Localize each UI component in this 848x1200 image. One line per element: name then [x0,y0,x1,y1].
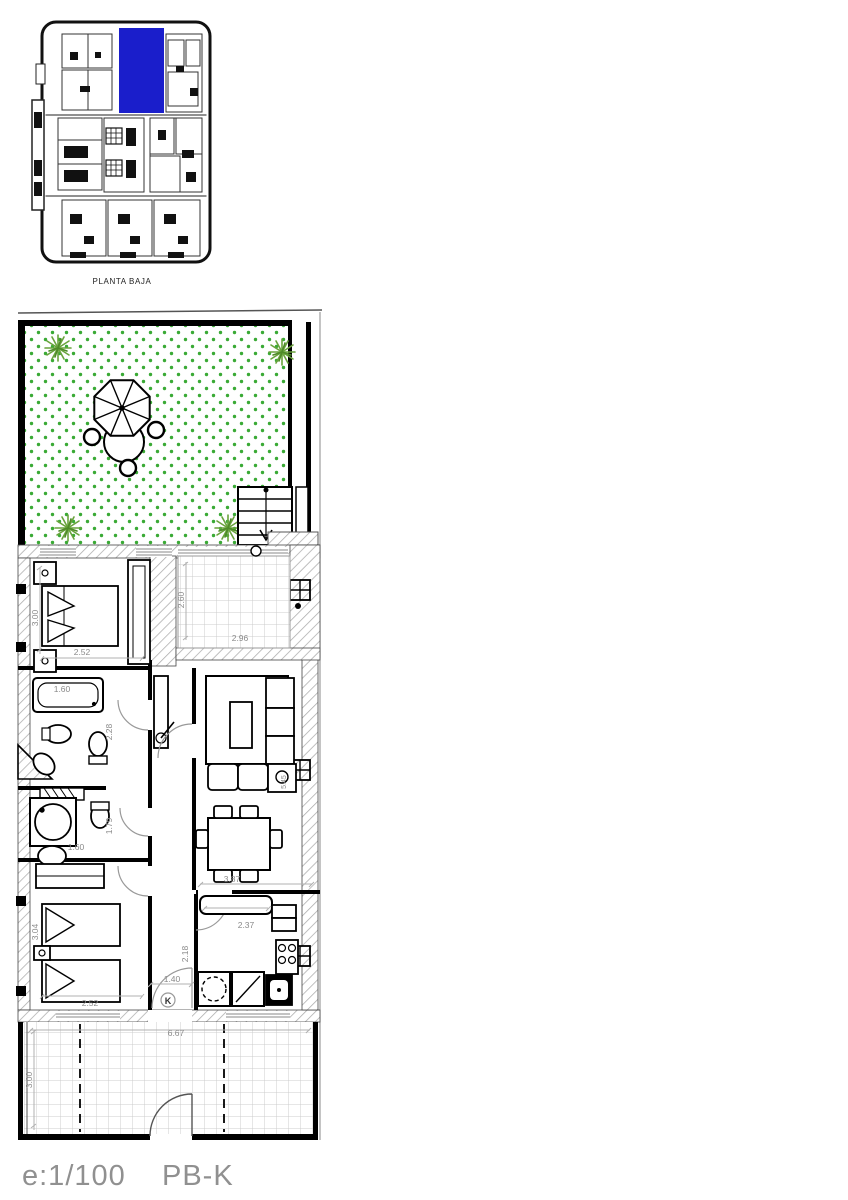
dim-hall-entry-width: 1.40 [164,974,181,984]
dim-terrace-lower-height: 3.00 [24,1071,34,1088]
fridge [272,905,296,931]
dim-bath2-width: 1.60 [68,842,85,852]
washing-machine [198,972,230,1006]
dishwasher [232,972,264,1006]
kitchen [198,896,298,1006]
counter [200,896,272,914]
hob [276,940,298,974]
living-room [196,676,314,887]
bathroom-1 [18,678,107,800]
overview-caption: PLANTA BAJA [93,277,152,286]
washbasin [38,846,66,866]
sheet-label: PB-K [162,1160,234,1193]
bathroom-2 [30,798,109,866]
drawing-sheet: PLANTA BAJA [0,0,848,1200]
dim-hall-height: 2.18 [180,945,190,962]
door-arc [120,808,148,836]
garden-chair [120,460,136,476]
dim-bath1-height: 2.28 [104,723,114,740]
boiler-icon [251,546,261,556]
dim-bedroom2-height: 3.04 [30,923,40,940]
sink [266,975,292,1005]
bedroom-2 [34,864,144,1002]
dim-bath1-tub: 1.60 [54,684,71,694]
dim-bedroom1-height: 3.00 [30,609,40,626]
dim-terrace-lower-width: 6.67 [168,1028,185,1038]
dim-bath2-height: 1.79 [104,817,114,834]
overview-plan: PLANTA BAJA [32,22,210,286]
terrace-lower [18,1022,318,1140]
dining-table [196,806,282,882]
highlighted-unit [119,28,164,113]
dim-terrace-upper-height: 2.60 [176,591,186,608]
bedroom-1 [34,560,150,672]
floor-plan-drawing: PLANTA BAJA [0,0,848,1200]
dim-living-width: 3.87 [224,874,241,884]
scale-label: e:1/100 [22,1160,126,1193]
door-arc [118,700,148,730]
dim-terrace-upper-width: 2.96 [232,633,249,643]
dim-bedroom2-width: 2.52 [82,998,99,1008]
dim-living-side: 5.45 [281,775,288,789]
dim-kitchen-width: 2.37 [238,920,255,930]
door-arc [118,866,148,896]
parasol [94,380,149,435]
coffee-table [230,702,252,748]
garden-chair [84,429,100,445]
entry-key-label: K [165,996,172,1006]
dim-bedroom1-width: 2.52 [74,647,91,657]
garden-chair [148,422,164,438]
